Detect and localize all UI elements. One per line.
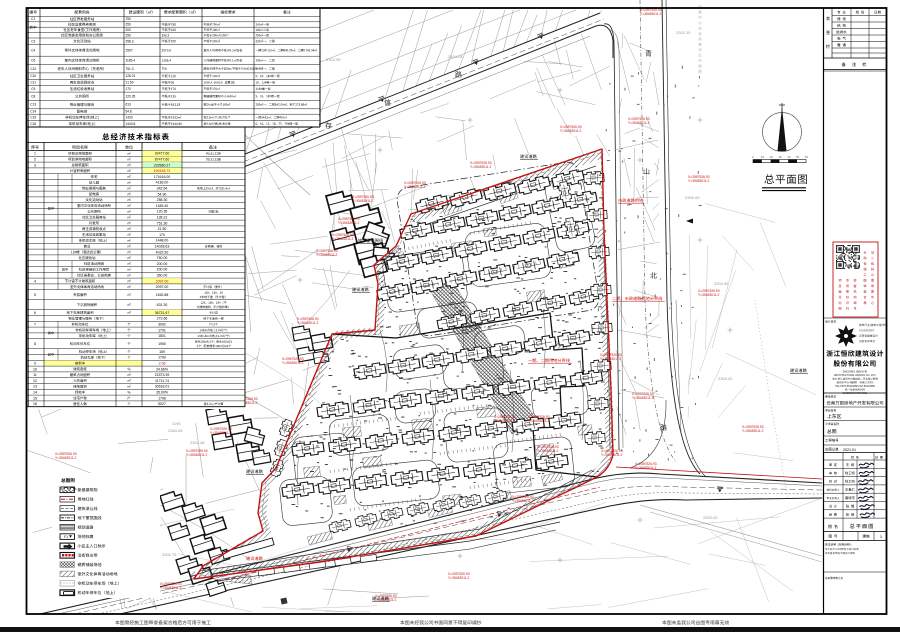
svg-text:2021.01: 2021.01 bbox=[843, 448, 856, 452]
svg-text:50: 50 bbox=[796, 155, 800, 159]
svg-text:C15: C15 bbox=[30, 116, 36, 120]
svg-text:159: 159 bbox=[159, 350, 165, 354]
svg-text:C12: C12 bbox=[30, 67, 36, 71]
svg-text:40: 40 bbox=[787, 155, 791, 159]
svg-text:F1: F1 bbox=[64, 535, 68, 539]
svg-text:2.08: 2.08 bbox=[159, 362, 166, 366]
svg-text:1: 1 bbox=[34, 152, 36, 156]
svg-text:190195.72: 190195.72 bbox=[154, 169, 171, 173]
svg-text:14: 14 bbox=[33, 391, 37, 395]
svg-text:60: 60 bbox=[805, 155, 809, 159]
svg-text:Y=35483011.2: Y=35483011.2 bbox=[186, 453, 207, 457]
svg-text:613: 613 bbox=[126, 103, 132, 107]
svg-text:250: 250 bbox=[126, 23, 132, 27]
svg-text:1448.00: 1448.00 bbox=[156, 239, 169, 243]
svg-text:360.00: 360.00 bbox=[157, 274, 168, 278]
svg-text:C1: C1 bbox=[31, 17, 35, 21]
svg-text:1790: 1790 bbox=[158, 356, 166, 360]
svg-text:1791: 1791 bbox=[158, 328, 166, 332]
svg-text:5027: 5027 bbox=[158, 402, 166, 406]
svg-text:128.21: 128.21 bbox=[126, 74, 136, 78]
svg-text:C3: C3 bbox=[31, 39, 35, 43]
svg-text:21573.39: 21573.39 bbox=[155, 373, 170, 377]
svg-text:ARCHITECTURAL DESIGN CO.,LTD.: ARCHITECTURAL DESIGN CO.,LTD. bbox=[834, 374, 877, 377]
svg-text:Y=35483011.2: Y=35483011.2 bbox=[332, 237, 353, 241]
svg-text:4: 4 bbox=[34, 279, 36, 283]
svg-text:1185.40: 1185.40 bbox=[156, 204, 168, 208]
svg-text:760.00: 760.00 bbox=[157, 256, 168, 260]
svg-text:1185.4: 1185.4 bbox=[126, 59, 136, 63]
svg-text:Y=35483011.2: Y=35483011.2 bbox=[512, 499, 533, 503]
svg-text:258.3: 258.3 bbox=[126, 39, 134, 43]
svg-text:Y=35483011.2: Y=35483011.2 bbox=[600, 357, 621, 361]
svg-text:16: 16 bbox=[33, 402, 37, 406]
svg-text:8: 8 bbox=[34, 342, 36, 346]
svg-text:1433: 1433 bbox=[126, 116, 133, 120]
svg-text:Y=35483011.2: Y=35483011.2 bbox=[338, 221, 359, 225]
svg-text:Y=35483011.2: Y=35483011.2 bbox=[601, 453, 622, 457]
svg-text:Y=35483011.2: Y=35483011.2 bbox=[470, 165, 491, 169]
svg-text:2305.09: 2305.09 bbox=[685, 195, 700, 200]
svg-text:750: 750 bbox=[126, 17, 132, 21]
svg-text:21.50: 21.50 bbox=[126, 81, 134, 85]
svg-text:2304.99: 2304.99 bbox=[326, 57, 341, 62]
svg-text:13: 13 bbox=[33, 385, 37, 389]
svg-text:Y=35483011.2: Y=35483011.2 bbox=[160, 586, 181, 590]
svg-text:2304.24: 2304.24 bbox=[448, 54, 463, 59]
svg-text:200: 200 bbox=[126, 28, 132, 32]
svg-text:170: 170 bbox=[159, 233, 165, 237]
svg-text:Y=35483011.2: Y=35483011.2 bbox=[688, 179, 709, 183]
svg-text:200.00: 200.00 bbox=[157, 268, 168, 272]
svg-text:3092: 3092 bbox=[158, 323, 166, 327]
svg-text:258.30: 258.30 bbox=[157, 198, 168, 202]
svg-text:250: 250 bbox=[126, 33, 132, 37]
svg-text:Y=35483011.2: Y=35483011.2 bbox=[640, 12, 661, 16]
svg-text:11: 11 bbox=[33, 373, 37, 377]
svg-text:2384.08: 2384.08 bbox=[168, 428, 183, 433]
svg-text:C10: C10 bbox=[30, 74, 36, 78]
svg-text:92477.60: 92477.60 bbox=[155, 152, 170, 156]
svg-text:Y=35483011.2: Y=35483011.2 bbox=[635, 466, 656, 470]
svg-text:9: 9 bbox=[34, 362, 36, 366]
svg-text:232580.27: 232580.27 bbox=[154, 163, 171, 167]
svg-text:171616.00: 171616.00 bbox=[154, 175, 171, 179]
svg-text:21.50: 21.50 bbox=[158, 227, 167, 231]
svg-text:91330600147964481L: 91330600147964481L bbox=[842, 392, 868, 395]
svg-text:30: 30 bbox=[778, 155, 782, 159]
svg-text:20: 20 bbox=[770, 155, 774, 159]
svg-text:1950: 1950 bbox=[158, 342, 166, 346]
svg-text:128.21: 128.21 bbox=[157, 216, 168, 220]
svg-text:2302.15: 2302.15 bbox=[676, 30, 691, 35]
svg-text:C9: C9 bbox=[31, 87, 35, 91]
svg-text:2097.00: 2097.00 bbox=[156, 285, 169, 289]
svg-text:2304.96: 2304.96 bbox=[714, 281, 729, 286]
svg-text:273.66: 273.66 bbox=[157, 317, 168, 321]
svg-text:ZHEJIANG HENGXIN: ZHEJIANG HENGXIN bbox=[843, 371, 868, 374]
svg-text:C4: C4 bbox=[31, 48, 35, 52]
svg-text:Y=35483011.2: Y=35483011.2 bbox=[404, 185, 425, 189]
svg-text:7: 7 bbox=[34, 323, 36, 327]
svg-text:5: 5 bbox=[34, 293, 36, 297]
svg-text:1440.8: 1440.8 bbox=[126, 122, 136, 126]
svg-text:C6: C6 bbox=[31, 59, 35, 63]
svg-text:Y=35483011.2: Y=35483011.2 bbox=[297, 321, 318, 325]
svg-text:631.30: 631.30 bbox=[157, 303, 168, 307]
svg-text:2302.75: 2302.75 bbox=[162, 552, 177, 557]
svg-text:15: 15 bbox=[33, 396, 37, 400]
svg-text:1796: 1796 bbox=[158, 396, 166, 400]
svg-text:120.35: 120.35 bbox=[126, 94, 136, 98]
svg-text:C13: C13 bbox=[30, 103, 36, 107]
svg-text:C14: C14 bbox=[30, 110, 36, 114]
svg-text:Y=35483011.2: Y=35483011.2 bbox=[628, 121, 649, 125]
svg-text:120.35: 120.35 bbox=[157, 210, 168, 214]
svg-text:2: 2 bbox=[34, 158, 36, 162]
svg-text:2097.00: 2097.00 bbox=[156, 279, 169, 283]
svg-text:2302.46: 2302.46 bbox=[190, 440, 205, 445]
svg-text:4022.90: 4022.90 bbox=[156, 250, 169, 254]
svg-text:Y=35483011.2: Y=35483011.2 bbox=[448, 576, 469, 580]
svg-text:1652.88: 1652.88 bbox=[156, 293, 169, 297]
svg-text:C16: C16 bbox=[30, 122, 36, 126]
svg-text:Y=35483011.2: Y=35483011.2 bbox=[316, 253, 337, 257]
svg-text:2304.32: 2304.32 bbox=[718, 376, 733, 381]
svg-text:36731.67: 36731.67 bbox=[155, 311, 170, 315]
svg-text:Y=35483011.2: Y=35483011.2 bbox=[528, 419, 549, 423]
svg-text:2597: 2597 bbox=[126, 48, 133, 52]
svg-text:24.66%: 24.66% bbox=[156, 367, 168, 371]
svg-text:87477.60: 87477.60 bbox=[155, 158, 170, 162]
svg-text:35.00%: 35.00% bbox=[156, 391, 168, 395]
svg-text:Y=35483011.2: Y=35483011.2 bbox=[55, 456, 76, 460]
svg-text:200.00: 200.00 bbox=[157, 262, 168, 266]
svg-text:30618.01: 30618.01 bbox=[155, 385, 170, 389]
svg-text:4183.00: 4183.00 bbox=[156, 181, 169, 185]
svg-text:Y=35483011.2: Y=35483011.2 bbox=[352, 199, 373, 203]
svg-text:TEL:0575-85119358 FAX:8511935: TEL:0575-85119358 FAX:85119358 bbox=[835, 385, 875, 388]
svg-text:1801: 1801 bbox=[158, 334, 166, 338]
svg-text:Y=35483011.2: Y=35483011.2 bbox=[282, 361, 303, 365]
svg-text:Y=35483011.2: Y=35483011.2 bbox=[632, 396, 653, 400]
svg-text:342.54: 342.54 bbox=[157, 187, 168, 191]
svg-text:14028.63: 14028.63 bbox=[155, 245, 170, 249]
svg-text:54.8: 54.8 bbox=[126, 110, 132, 114]
svg-text:751.30: 751.30 bbox=[157, 221, 168, 225]
svg-text:Y=35483011.2: Y=35483011.2 bbox=[698, 293, 719, 297]
svg-text:Y=35483011.2: Y=35483011.2 bbox=[742, 429, 763, 433]
svg-text:12: 12 bbox=[33, 379, 37, 383]
svg-text:10: 10 bbox=[761, 155, 765, 159]
svg-text:3: 3 bbox=[34, 163, 36, 167]
svg-text:C11: C11 bbox=[30, 81, 36, 85]
svg-text:Y=35483011.2: Y=35483011.2 bbox=[560, 129, 581, 133]
svg-text:11711.74: 11711.74 bbox=[155, 379, 169, 383]
svg-text:751.3: 751.3 bbox=[126, 67, 134, 71]
svg-text:Y=35483011.2: Y=35483011.2 bbox=[537, 449, 558, 453]
svg-text:Y=35483011.2: Y=35483011.2 bbox=[210, 431, 231, 435]
svg-text:2303.20: 2303.20 bbox=[703, 515, 718, 520]
svg-text:6: 6 bbox=[34, 311, 36, 315]
svg-text:170: 170 bbox=[126, 87, 132, 91]
svg-text:1196: 1196 bbox=[172, 421, 181, 426]
svg-text:54.90: 54.90 bbox=[158, 192, 167, 196]
svg-text:10: 10 bbox=[33, 367, 37, 371]
svg-text:C8: C8 bbox=[31, 94, 35, 98]
